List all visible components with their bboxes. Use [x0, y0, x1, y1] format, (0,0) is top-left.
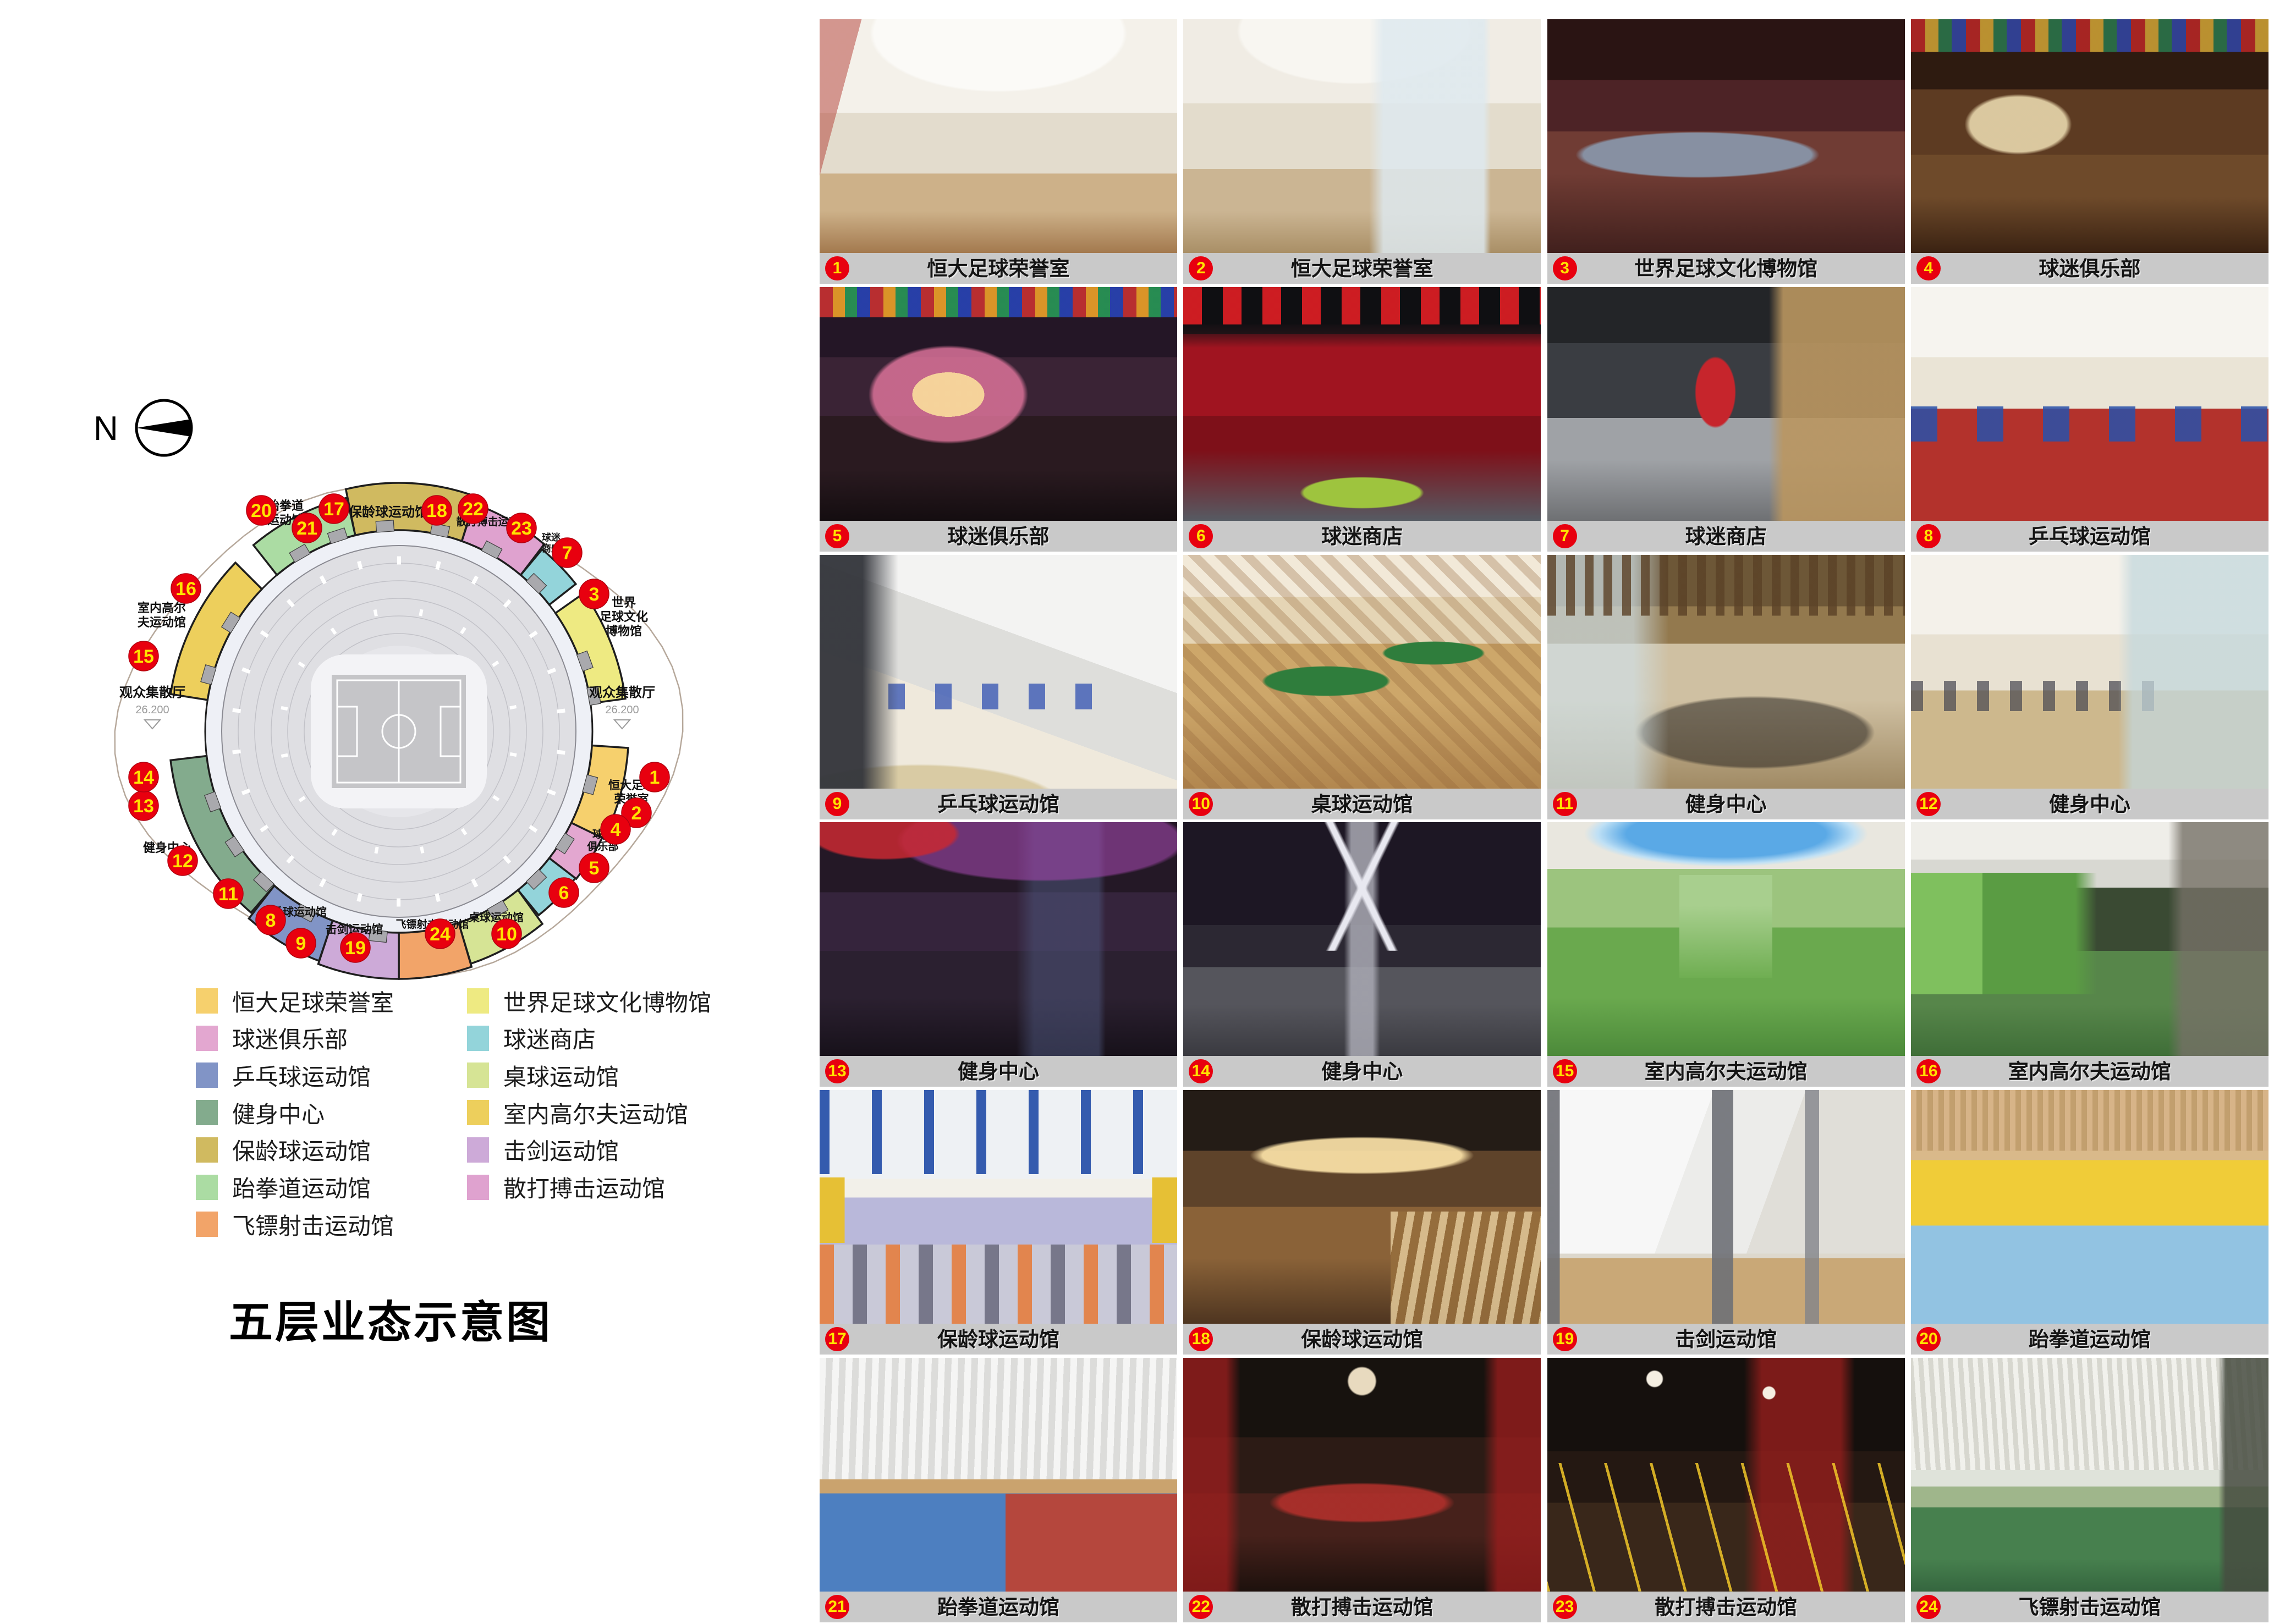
gallery-item: 散打搏击运动馆23 — [1547, 1358, 1905, 1622]
plan-marker-20: 20 — [246, 496, 276, 525]
photo-caption-bar: 世界足球文化博物馆3 — [1547, 253, 1905, 284]
venue-photo — [1911, 287, 2268, 521]
marker-number: 10 — [496, 924, 517, 945]
compass-north-label: N — [94, 410, 118, 448]
plan-marker-17: 17 — [319, 494, 349, 524]
marker-number: 17 — [323, 499, 344, 520]
gallery-item: 飞镖射击运动馆24 — [1911, 1358, 2268, 1622]
photo-number-badge: 5 — [825, 524, 849, 548]
gallery-item: 室内高尔夫运动馆16 — [1911, 822, 2268, 1087]
legend-item: 桌球运动馆 — [467, 1062, 619, 1088]
plan-marker-9: 9 — [286, 928, 316, 958]
photo-caption: 跆拳道运动馆 — [1911, 1324, 2268, 1355]
legend-label: 散打搏击运动馆 — [503, 1170, 665, 1204]
venue-photo — [1547, 822, 1905, 1056]
photo-number-badge: 21 — [825, 1595, 849, 1619]
plan-marker-19: 19 — [340, 933, 370, 962]
photo-number-badge: 10 — [1189, 792, 1213, 816]
legend-label: 健身中心 — [232, 1096, 325, 1130]
plan-marker-8: 8 — [256, 905, 285, 935]
concourse-label: 观众集散厅 — [119, 685, 185, 700]
venue-photo — [1547, 1090, 1905, 1324]
legend-label: 跆拳道运动馆 — [232, 1170, 371, 1204]
presentation-board: N 跆拳道运动馆保龄球运动馆散打搏击运动馆球迷商店室内高尔夫运动馆世界足球文化博… — [0, 0, 2274, 1624]
plan-marker-1: 1 — [640, 762, 669, 792]
photo-caption-bar: 跆拳道运动馆20 — [1911, 1324, 2268, 1355]
photo-caption: 健身中心 — [1547, 789, 1905, 819]
photo-number-badge: 4 — [1916, 256, 1941, 280]
photo-caption: 球迷商店 — [1547, 521, 1905, 552]
photo-caption-bar: 球迷商店6 — [1183, 521, 1541, 552]
photo-caption-bar: 健身中心14 — [1183, 1056, 1541, 1087]
marker-number: 23 — [511, 518, 532, 539]
gallery-item: 乒乓球运动馆8 — [1911, 287, 2268, 552]
legend-item: 跆拳道运动馆 — [196, 1174, 371, 1201]
plan-area-label-line: 足球文化 — [600, 610, 648, 624]
venue-photo — [1547, 555, 1905, 789]
gallery-item: 恒大足球荣誉室2 — [1183, 19, 1541, 284]
plan-marker-7: 7 — [552, 538, 582, 568]
marker-number: 22 — [463, 499, 484, 520]
legend-swatch — [196, 1175, 218, 1200]
gallery-item: 健身中心14 — [1183, 822, 1541, 1087]
plan-marker-14: 14 — [129, 762, 158, 792]
photo-caption-bar: 健身中心13 — [820, 1056, 1177, 1087]
photo-number-badge: 13 — [825, 1059, 849, 1083]
marker-number: 14 — [133, 767, 154, 788]
plan-area-label-line: 保龄球运动馆 — [348, 504, 428, 520]
photo-caption-bar: 乒乓球运动馆8 — [1911, 521, 2268, 552]
photo-number-badge: 3 — [1553, 256, 1577, 280]
venue-photo — [1183, 1358, 1541, 1592]
photo-caption-bar: 散打搏击运动馆23 — [1547, 1592, 1905, 1622]
legend-label: 世界足球文化博物馆 — [503, 984, 711, 1018]
marker-number: 13 — [133, 796, 154, 817]
plan-marker-15: 15 — [129, 641, 158, 671]
legend-swatch — [467, 1026, 489, 1051]
photo-caption: 室内高尔夫运动馆 — [1911, 1056, 2268, 1087]
venue-photo — [1183, 1090, 1541, 1324]
marker-number: 5 — [589, 858, 600, 879]
photo-caption: 桌球运动馆 — [1183, 789, 1541, 819]
legend-label: 球迷俱乐部 — [232, 1021, 348, 1055]
plan-marker-12: 12 — [168, 846, 197, 876]
floor-plan: 跆拳道运动馆保龄球运动馆散打搏击运动馆球迷商店室内高尔夫运动馆世界足球文化博物馆… — [105, 470, 688, 1012]
venue-photo — [820, 287, 1177, 521]
venue-photo — [1911, 19, 2268, 253]
marker-number: 18 — [426, 500, 447, 521]
gallery-item: 球迷俱乐部5 — [820, 287, 1177, 552]
venue-photo — [1547, 19, 1905, 253]
venue-photo — [1547, 287, 1905, 521]
photo-caption: 球迷俱乐部 — [820, 521, 1177, 552]
photo-number-badge: 7 — [1553, 524, 1577, 548]
vomitory-tick — [397, 898, 400, 906]
marker-number: 15 — [133, 646, 154, 667]
photo-number-badge: 18 — [1189, 1327, 1213, 1351]
legend-swatch — [196, 1063, 218, 1088]
photo-caption: 散打搏击运动馆 — [1547, 1592, 1905, 1622]
legend-swatch — [467, 988, 489, 1014]
gallery-item: 球迷商店7 — [1547, 287, 1905, 552]
marker-number: 16 — [175, 579, 196, 599]
marker-number: 21 — [296, 518, 317, 539]
gallery-item: 桌球运动馆10 — [1183, 555, 1541, 819]
legend-item: 击剑运动馆 — [467, 1137, 619, 1163]
gallery-item: 恒大足球荣誉室1 — [820, 19, 1177, 284]
legend-label: 桌球运动馆 — [503, 1059, 619, 1092]
marker-number: 4 — [611, 819, 621, 840]
plan-marker-5: 5 — [579, 853, 609, 883]
plan-marker-16: 16 — [171, 574, 201, 603]
photo-caption-bar: 健身中心12 — [1911, 789, 2268, 819]
marker-number: 8 — [266, 910, 276, 931]
venue-photo — [820, 1090, 1177, 1324]
concourse-label: 观众集散厅 — [589, 685, 655, 700]
marker-number: 20 — [251, 500, 272, 521]
gallery-item: 跆拳道运动馆21 — [820, 1358, 1177, 1622]
marker-number: 11 — [218, 884, 238, 905]
plan-marker-18: 18 — [422, 496, 452, 525]
gallery-item: 健身中心13 — [820, 822, 1177, 1087]
plan-marker-23: 23 — [507, 513, 536, 543]
plan-area-label-line: 室内高尔 — [138, 601, 186, 615]
plan-marker-21: 21 — [292, 513, 322, 543]
plan-marker-4: 4 — [601, 814, 630, 844]
legend-item: 恒大足球荣誉室 — [196, 988, 394, 1014]
legend-swatch — [467, 1100, 489, 1125]
legend-swatch — [196, 988, 218, 1014]
photo-caption: 乒乓球运动馆 — [1911, 521, 2268, 552]
plan-area-label-line: 世界 — [612, 596, 636, 609]
legend-item: 保龄球运动馆 — [196, 1137, 371, 1163]
photo-caption: 恒大足球荣誉室 — [1183, 253, 1541, 284]
vomitory-tick — [397, 556, 401, 564]
legend-swatch — [467, 1063, 489, 1088]
photo-number-badge: 23 — [1553, 1595, 1577, 1619]
venue-photo — [1911, 555, 2268, 789]
photo-number-badge: 11 — [1553, 792, 1577, 816]
photo-caption-bar: 球迷俱乐部5 — [820, 521, 1177, 552]
gallery-item: 健身中心11 — [1547, 555, 1905, 819]
venue-photo — [820, 19, 1177, 253]
gallery-item: 散打搏击运动馆22 — [1183, 1358, 1541, 1622]
plan-marker-6: 6 — [549, 878, 579, 907]
marker-number: 12 — [172, 851, 193, 872]
plan-marker-24: 24 — [425, 919, 455, 949]
photo-caption-bar: 散打搏击运动馆22 — [1183, 1592, 1541, 1622]
marker-number: 9 — [296, 933, 306, 954]
plan-marker-3: 3 — [579, 579, 609, 609]
legend-label: 乒乓球运动馆 — [232, 1059, 371, 1092]
legend-label: 室内高尔夫运动馆 — [503, 1096, 688, 1130]
venue-photo — [820, 822, 1177, 1056]
marker-number: 6 — [559, 883, 569, 904]
photo-caption-bar: 保龄球运动馆17 — [820, 1324, 1177, 1355]
legend-item: 世界足球文化博物馆 — [467, 988, 711, 1014]
legend-swatch — [196, 1100, 218, 1125]
legend-label: 球迷商店 — [503, 1021, 596, 1055]
photo-number-badge: 1 — [825, 256, 849, 280]
photo-number-badge: 6 — [1189, 524, 1213, 548]
legend-label: 恒大足球荣誉室 — [232, 984, 394, 1018]
photo-caption: 恒大足球荣誉室 — [820, 253, 1177, 284]
photo-caption-bar: 球迷商店7 — [1547, 521, 1905, 552]
venue-photo — [1183, 822, 1541, 1056]
photo-number-badge: 15 — [1553, 1059, 1577, 1083]
photo-caption-bar: 恒大足球荣誉室2 — [1183, 253, 1541, 284]
venue-photo — [820, 555, 1177, 789]
photo-caption-bar: 乒乓球运动馆9 — [820, 789, 1177, 819]
photo-number-badge: 9 — [825, 792, 849, 816]
gallery-item: 健身中心12 — [1911, 555, 2268, 819]
photo-caption: 健身中心 — [1183, 1056, 1541, 1087]
photo-caption-bar: 击剑运动馆19 — [1547, 1324, 1905, 1355]
photo-caption-bar: 桌球运动馆10 — [1183, 789, 1541, 819]
marker-number: 1 — [650, 767, 660, 788]
photo-number-badge: 14 — [1189, 1059, 1213, 1083]
plan-area-label: 室内高尔夫运动馆 — [138, 601, 186, 629]
legend-item: 乒乓球运动馆 — [196, 1062, 371, 1088]
photo-caption-bar: 健身中心11 — [1547, 789, 1905, 819]
photo-caption: 散打搏击运动馆 — [1183, 1592, 1541, 1622]
gallery-item: 世界足球文化博物馆3 — [1547, 19, 1905, 284]
photo-caption: 球迷俱乐部 — [1911, 253, 2268, 284]
photo-caption: 室内高尔夫运动馆 — [1547, 1056, 1905, 1087]
photo-number-badge: 22 — [1189, 1595, 1213, 1619]
legend-item: 球迷商店 — [467, 1025, 596, 1052]
legend-item: 散打搏击运动馆 — [467, 1174, 665, 1201]
marker-number: 7 — [562, 543, 573, 564]
venue-photo — [1183, 555, 1541, 789]
photo-caption-bar: 跆拳道运动馆21 — [820, 1592, 1177, 1622]
photo-caption: 跆拳道运动馆 — [820, 1592, 1177, 1622]
legend-swatch — [467, 1137, 489, 1163]
plan-marker-22: 22 — [458, 494, 488, 524]
legend-swatch — [196, 1212, 218, 1237]
plan-area-label: 保龄球运动馆 — [348, 504, 428, 520]
photo-caption: 健身中心 — [1911, 789, 2268, 819]
venue-photo — [1183, 19, 1541, 253]
photo-caption-bar: 恒大足球荣誉室1 — [820, 253, 1177, 284]
photo-caption-bar: 室内高尔夫运动馆16 — [1911, 1056, 2268, 1087]
photo-caption-bar: 保龄球运动馆18 — [1183, 1324, 1541, 1355]
venue-photo — [1547, 1358, 1905, 1592]
legend-item: 室内高尔夫运动馆 — [467, 1099, 688, 1126]
photo-number-badge: 24 — [1916, 1595, 1941, 1619]
gallery-item: 保龄球运动馆17 — [820, 1090, 1177, 1355]
venue-photo — [1911, 822, 2268, 1056]
legend-label: 击剑运动馆 — [503, 1133, 619, 1166]
photo-caption: 击剑运动馆 — [1547, 1324, 1905, 1355]
photo-number-badge: 2 — [1189, 256, 1213, 280]
venue-photo — [1911, 1358, 2268, 1592]
photo-caption: 健身中心 — [820, 1056, 1177, 1087]
gallery-item: 击剑运动馆19 — [1547, 1090, 1905, 1355]
compass: N — [88, 392, 220, 466]
marker-number: 19 — [345, 938, 366, 959]
gallery-item: 室内高尔夫运动馆15 — [1547, 822, 1905, 1087]
marker-number: 2 — [631, 803, 642, 824]
photo-number-badge: 16 — [1916, 1059, 1941, 1083]
concourse-level: 26.200 — [135, 704, 169, 716]
plan-marker-10: 10 — [492, 919, 521, 949]
photo-caption: 世界足球文化博物馆 — [1547, 253, 1905, 284]
legend-item: 球迷俱乐部 — [196, 1025, 348, 1052]
photo-caption-bar: 室内高尔夫运动馆15 — [1547, 1056, 1905, 1087]
photo-caption: 保龄球运动馆 — [820, 1324, 1177, 1355]
photo-caption: 飞镖射击运动馆 — [1911, 1592, 2268, 1622]
photo-caption: 球迷商店 — [1183, 521, 1541, 552]
photo-number-badge: 20 — [1916, 1327, 1941, 1351]
plan-title: 五层业态示意图 — [182, 1287, 600, 1351]
plan-marker-11: 11 — [213, 879, 243, 909]
gate-block — [376, 520, 394, 532]
venue-photo — [1911, 1090, 2268, 1324]
gallery-item: 跆拳道运动馆20 — [1911, 1090, 2268, 1355]
gallery-item: 保龄球运动馆18 — [1183, 1090, 1541, 1355]
legend-item: 健身中心 — [196, 1099, 325, 1126]
marker-number: 24 — [430, 924, 451, 945]
photo-number-badge: 12 — [1916, 792, 1941, 816]
legend-label: 飞镖射击运动馆 — [232, 1208, 394, 1241]
concourse-level: 26.200 — [605, 704, 639, 716]
photo-caption: 保龄球运动馆 — [1183, 1324, 1541, 1355]
plan-area-label-line: 博物馆 — [606, 624, 642, 638]
photo-caption-bar: 飞镖射击运动馆24 — [1911, 1592, 2268, 1622]
photo-number-badge: 19 — [1553, 1327, 1577, 1351]
legend-label: 保龄球运动馆 — [232, 1133, 371, 1166]
marker-number: 3 — [589, 584, 600, 605]
photo-caption: 乒乓球运动馆 — [820, 789, 1177, 819]
photo-caption-bar: 球迷俱乐部4 — [1911, 253, 2268, 284]
venue-photo — [1183, 287, 1541, 521]
legend-item: 飞镖射击运动馆 — [196, 1211, 394, 1237]
plan-marker-13: 13 — [129, 791, 158, 821]
venue-photo — [820, 1358, 1177, 1592]
plan-area-label-line: 夫运动馆 — [138, 615, 186, 629]
photo-number-badge: 8 — [1916, 524, 1941, 548]
legend-swatch — [196, 1137, 218, 1163]
legend-swatch — [196, 1026, 218, 1051]
photo-number-badge: 17 — [825, 1327, 849, 1351]
legend-swatch — [467, 1175, 489, 1200]
gallery-item: 球迷俱乐部4 — [1911, 19, 2268, 284]
gallery-item: 乒乓球运动馆9 — [820, 555, 1177, 819]
gallery-item: 球迷商店6 — [1183, 287, 1541, 552]
